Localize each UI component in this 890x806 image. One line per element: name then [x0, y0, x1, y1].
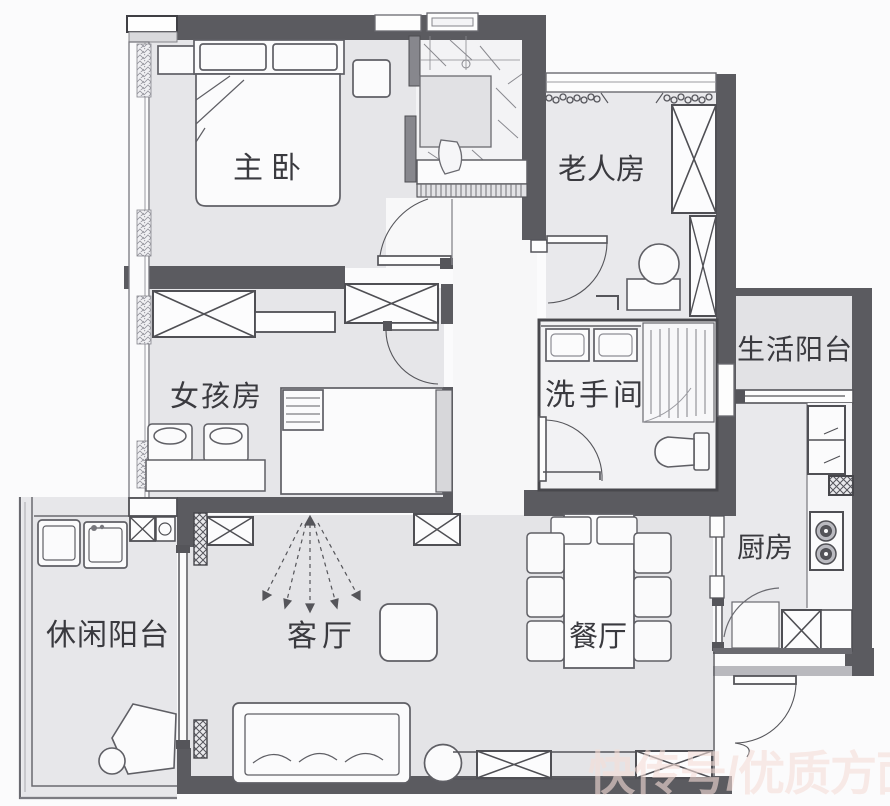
- svg-text:生活阳台: 生活阳台: [737, 334, 853, 365]
- svg-text:餐厅: 餐厅: [569, 620, 627, 653]
- svg-text:客厅: 客厅: [287, 620, 357, 653]
- svg-text:快传号/优质方面: 快传号/优质方面: [588, 747, 890, 800]
- svg-text:女孩房: 女孩房: [170, 380, 263, 413]
- svg-text:厨房: 厨房: [737, 532, 793, 563]
- svg-text:洗手间: 洗手间: [545, 379, 647, 412]
- svg-text:休闲阳台: 休闲阳台: [46, 619, 170, 652]
- svg-text:主卧: 主卧: [233, 152, 309, 185]
- svg-text:老人房: 老人房: [558, 153, 645, 186]
